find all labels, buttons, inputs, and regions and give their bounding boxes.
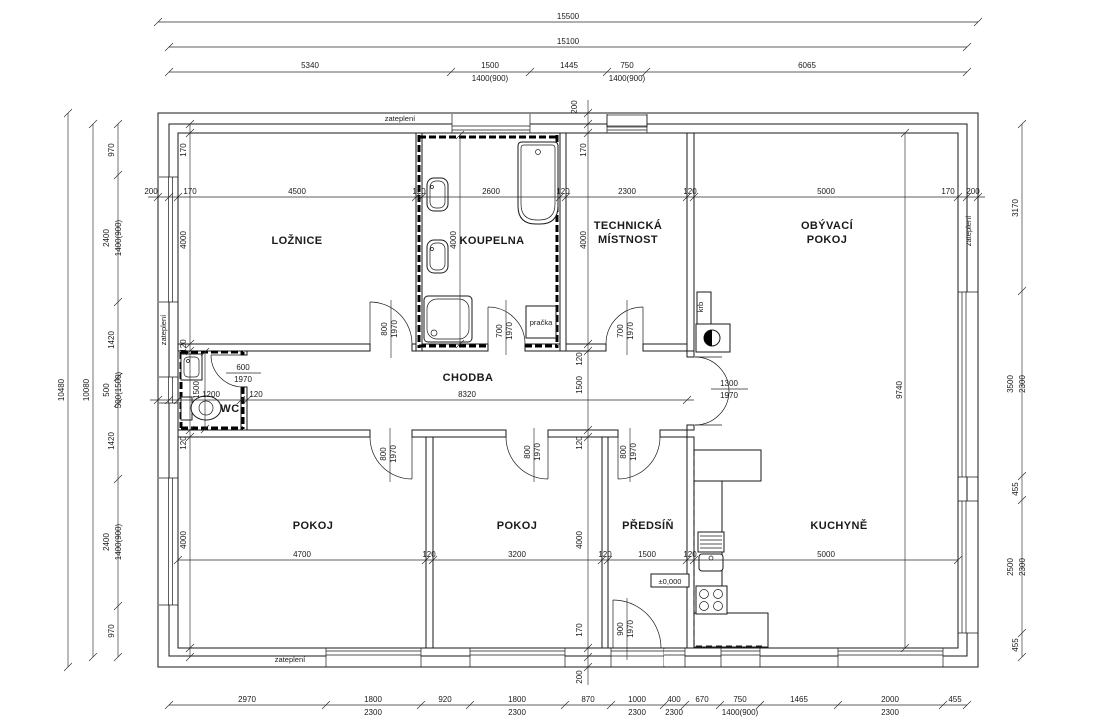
dim-label: 4000 (449, 231, 458, 249)
wc-fixtures (181, 354, 221, 420)
shower (424, 296, 472, 342)
dim-label: 120 (683, 550, 697, 559)
room-label: KUCHYNĚ (810, 519, 867, 532)
dim-label: 4700 (293, 550, 311, 559)
dim-label: 5000 (817, 187, 835, 196)
dim-label: 1970 (533, 443, 542, 461)
room-label: POKOJ (807, 234, 848, 246)
dim-label: 4500 (288, 187, 306, 196)
dimension-lines (64, 18, 1026, 709)
dim-label: 2300 (665, 708, 683, 717)
dim-label: 10080 (82, 378, 91, 401)
dim-label: 200 (966, 187, 980, 196)
room-label: POKOJ (293, 520, 334, 532)
annotation-label: krb (696, 302, 705, 312)
dim-label: 500 (102, 383, 111, 397)
dim-label: 1500 (575, 376, 584, 394)
room-label: LOŽNICE (271, 234, 322, 247)
dim-label: 1000 (628, 695, 646, 704)
dim-label: 1970 (505, 322, 514, 340)
dim-label: 3200 (508, 550, 526, 559)
dim-label: 670 (695, 695, 709, 704)
dim-label: 1970 (629, 443, 638, 461)
dim-label: 170 (183, 187, 197, 196)
dim-label: 2400 (102, 229, 111, 247)
dim-label: 1200 (202, 390, 220, 399)
annotation-label: zateplení (964, 215, 973, 246)
dim-label: 1400(900) (609, 74, 646, 83)
dim-label: 1800 (364, 695, 382, 704)
dim-label: 170 (579, 143, 588, 157)
dim-label: 870 (581, 695, 595, 704)
dim-label: 800 (523, 445, 532, 459)
dim-label: 2000 (881, 695, 899, 704)
dim-label: 2300 (1018, 375, 1027, 393)
dim-label: 200 (570, 100, 579, 114)
dim-label: 120 (179, 339, 188, 353)
dim-label: 120 (598, 550, 612, 559)
dim-label: 1445 (560, 61, 578, 70)
dim-label: 2300 (1018, 558, 1027, 576)
dim-label: 2300 (618, 187, 636, 196)
dim-label: 400 (667, 695, 681, 704)
annotation-label: zateplení (159, 314, 168, 345)
dim-label: 700 (495, 324, 504, 338)
dim-label: 10480 (57, 378, 66, 401)
dim-label: 1400(900) (114, 523, 123, 560)
sink (427, 240, 448, 273)
dim-label: 120 (683, 187, 697, 196)
dim-label: 1500 (481, 61, 499, 70)
floor-plan-canvas: LOŽNICEKOUPELNATECHNICKÁMÍSTNOSTOBÝVACÍP… (0, 0, 1100, 728)
dim-label: 170 (941, 187, 955, 196)
dim-label: 2500 (1006, 558, 1015, 576)
dim-label: 970 (107, 624, 116, 638)
dim-label: 2400 (102, 533, 111, 551)
dim-label: 1970 (720, 391, 738, 400)
dim-label: 3500 (1006, 375, 1015, 393)
dim-label: 1970 (626, 322, 635, 340)
dim-label: 4000 (179, 231, 188, 249)
dim-label: 200 (144, 187, 158, 196)
entrance-opening (611, 649, 664, 666)
dim-label: 120 (249, 390, 263, 399)
dim-label: 3170 (1011, 199, 1020, 217)
dim-label: 1420 (107, 331, 116, 349)
dim-label: 2300 (628, 708, 646, 717)
dim-label: 120 (179, 436, 188, 450)
dim-label: 170 (575, 623, 584, 637)
dim-label: 170 (179, 143, 188, 157)
dim-label: 1300 (720, 379, 738, 388)
bathroom-wc-walls (181, 135, 557, 429)
dim-label: 1400(900) (114, 219, 123, 256)
annotation-label: ±0,000 (659, 577, 682, 586)
room-label: WC (220, 403, 239, 415)
room-label: PŘEDSÍŇ (622, 519, 674, 532)
room-label: POKOJ (497, 520, 538, 532)
dim-label: 2970 (238, 695, 256, 704)
dim-label: 800 (619, 445, 628, 459)
dim-label: 120 (412, 187, 426, 196)
wc-sink (181, 354, 202, 380)
dim-label: 600 (236, 363, 250, 372)
dim-label: 455 (1011, 638, 1020, 652)
room-label: MÍSTNOST (598, 233, 658, 246)
dim-label: 2300 (508, 708, 526, 717)
dim-label: 5000 (817, 550, 835, 559)
dim-label: 2600 (482, 187, 500, 196)
dim-label: 800 (380, 322, 389, 336)
annotation-label: zateplení (385, 114, 416, 123)
sidelight (664, 649, 685, 666)
dim-label: 1500 (192, 381, 201, 399)
dim-label: 1400(900) (472, 74, 509, 83)
stove (696, 586, 727, 614)
dim-label: 970 (107, 143, 116, 157)
kitchen-sink (698, 532, 724, 571)
dim-label: 750 (733, 695, 747, 704)
dim-label: 120 (556, 187, 570, 196)
dim-label: 4000 (575, 531, 584, 549)
toilet (181, 396, 221, 420)
dim-label: 900 (616, 622, 625, 636)
dim-label: 6065 (798, 61, 816, 70)
annotation-label: zateplení (275, 655, 306, 664)
dim-label: 1970 (389, 445, 398, 463)
dim-label: 1420 (107, 432, 116, 450)
dim-label: 1800 (508, 695, 526, 704)
floor-plan-drawing: LOŽNICEKOUPELNATECHNICKÁMÍSTNOSTOBÝVACÍP… (0, 0, 1100, 728)
dim-label: 500(1500) (114, 371, 123, 408)
fireplace (696, 292, 730, 352)
kitchen-counter (694, 450, 768, 648)
dim-label: 4000 (179, 531, 188, 549)
dim-label: 920 (438, 695, 452, 704)
doors (211, 302, 729, 648)
bathtub (518, 142, 558, 224)
dim-label: 15500 (557, 12, 580, 21)
dim-label: 455 (948, 695, 962, 704)
exterior-walls (158, 113, 978, 667)
room-label: CHODBA (443, 372, 494, 384)
sink (427, 178, 448, 211)
dim-label: 120 (575, 352, 584, 366)
dim-label: 700 (616, 324, 625, 338)
dim-label: 455 (1011, 482, 1020, 496)
dim-label: 1970 (234, 375, 252, 384)
dim-label: 2300 (881, 708, 899, 717)
dim-label: 2300 (364, 708, 382, 717)
room-label: TECHNICKÁ (594, 219, 662, 232)
dim-label: 15100 (557, 37, 580, 46)
dim-label: 750 (620, 61, 634, 70)
dim-label: 5340 (301, 61, 319, 70)
dim-label: 1500 (638, 550, 656, 559)
dim-label: 1400(900) (722, 708, 759, 717)
dim-label: 4000 (579, 231, 588, 249)
room-label: KOUPELNA (460, 235, 525, 247)
dim-label: 120 (575, 436, 584, 450)
dim-label: 8320 (458, 390, 476, 399)
dim-label: 1970 (390, 320, 399, 338)
dim-label: 1970 (626, 620, 635, 638)
dim-label: 200 (575, 670, 584, 684)
dim-label: 9740 (895, 381, 904, 399)
dim-label: 1465 (790, 695, 808, 704)
dim-label: 120 (422, 550, 436, 559)
annotation-label: pračka (530, 318, 553, 327)
room-label: OBÝVACÍ (801, 219, 854, 232)
dim-label: 800 (379, 447, 388, 461)
